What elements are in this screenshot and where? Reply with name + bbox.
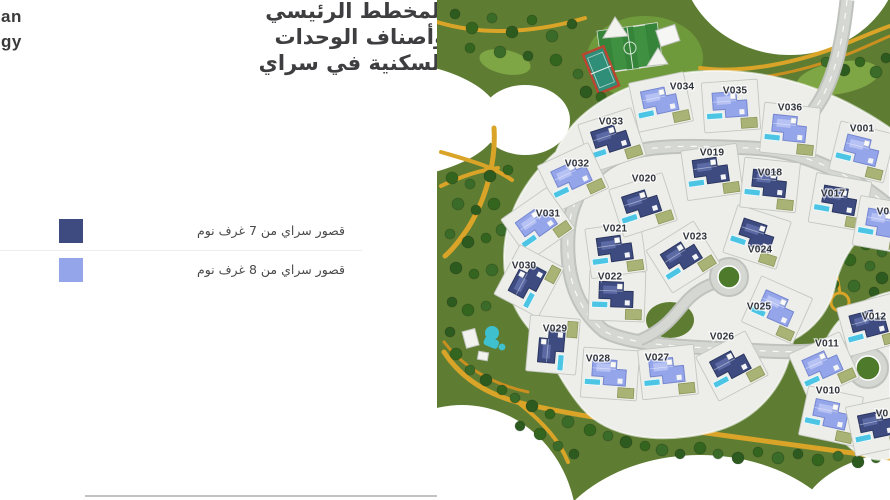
tree [465, 365, 475, 375]
legend-swatch-7br [59, 219, 83, 243]
villa-yard [567, 321, 578, 338]
tree [870, 66, 882, 78]
villa-label-V035: V035 [723, 86, 748, 97]
villa-pool [592, 301, 608, 308]
villa-label-V033: V033 [599, 117, 624, 128]
roof-block [610, 362, 615, 367]
tree [469, 269, 479, 279]
tree [510, 393, 520, 403]
villa-roof-wing [603, 286, 617, 294]
tree [465, 43, 475, 53]
villa-label-V026: V026 [710, 332, 735, 343]
tree [515, 421, 525, 431]
logo-partial: an gy [1, 4, 22, 54]
tree [503, 165, 513, 175]
logo-line-2: gy [1, 29, 22, 54]
villa-label-V010: V010 [816, 386, 841, 397]
tree [462, 236, 474, 248]
roof-block [797, 135, 802, 140]
tree [713, 449, 723, 459]
roof-block [720, 174, 726, 180]
legend-label-8br: قصور سراي من 8 غرف نوم [100, 262, 345, 277]
tree [550, 54, 562, 66]
roof-block [864, 140, 870, 146]
villa-roof-wing [716, 96, 731, 105]
villa-label-V021: V021 [603, 224, 628, 235]
villa-yard [723, 181, 740, 193]
roof-block [846, 207, 852, 213]
villa-label-V012: V012 [862, 312, 887, 323]
roof-block [614, 237, 620, 243]
masterplan-slide: an gy المخطط الرئيسي وأصناف الوحدات السك… [0, 0, 890, 500]
tree [603, 431, 613, 441]
tree [526, 400, 538, 412]
villa-label-V030: V030 [512, 261, 537, 272]
villa-yard [797, 144, 814, 156]
tree [527, 15, 537, 25]
tree [584, 424, 596, 436]
villa-yard [678, 382, 695, 394]
roof-block [777, 190, 782, 195]
tree [523, 51, 533, 61]
tree [445, 229, 455, 239]
tree [481, 301, 491, 311]
tree [494, 46, 506, 58]
tree [848, 280, 860, 292]
tree [484, 170, 496, 182]
roof-block [791, 118, 796, 123]
legend-divider [0, 250, 362, 251]
tree [488, 198, 500, 210]
tree [675, 449, 685, 459]
tree [462, 304, 474, 316]
tree [732, 452, 744, 464]
title-line-1: المخطط الرئيسي [217, 0, 447, 24]
villa-pool [584, 378, 600, 385]
villa-label-V023: V023 [683, 232, 708, 243]
title-line-3: السكنية في سراي [217, 50, 447, 76]
villa-label-V022: V022 [598, 272, 623, 283]
roof-block [832, 404, 838, 410]
villa-label-V027: V027 [645, 353, 670, 364]
tree [445, 327, 455, 337]
villa-yard [617, 388, 634, 399]
villa-yard [741, 117, 758, 128]
villa-label-V019: V019 [700, 148, 725, 159]
tree [833, 451, 843, 461]
tree [569, 449, 579, 459]
villa-label-V018: V018 [758, 168, 783, 179]
roof-block [739, 109, 744, 114]
tree [772, 452, 784, 464]
roof-block [659, 89, 665, 95]
tree [876, 272, 888, 284]
villa-yard [777, 199, 794, 211]
tree [620, 436, 632, 448]
villa-label-partial-25: V0 [876, 409, 889, 420]
villa-label-V032: V032 [565, 159, 590, 170]
villa-label-V001: V001 [850, 124, 875, 135]
villa-V018[interactable] [740, 157, 801, 213]
tree [487, 13, 497, 23]
villa-label-partial-24: V0 [877, 207, 890, 218]
villa-label-V029: V029 [543, 324, 568, 335]
villa-yard [625, 309, 641, 320]
tree [793, 449, 803, 459]
villa-label-V024: V024 [748, 245, 773, 256]
page-title: المخطط الرئيسي وأصناف الوحدات السكنية في… [217, 0, 447, 76]
villa-label-V036: V036 [778, 103, 803, 114]
roof-block [617, 379, 622, 384]
roof-block [837, 422, 843, 428]
villa-pool [744, 188, 761, 196]
villa-label-V025: V025 [747, 302, 772, 313]
tree [450, 348, 462, 360]
legend-label-7br: قصور سراي من 7 غرف نوم [100, 223, 345, 238]
roof-block [710, 159, 716, 165]
tree [812, 454, 824, 466]
villa-label-V017: V017 [821, 189, 846, 200]
tree [562, 416, 574, 428]
roof-block [670, 103, 676, 109]
roof-block [541, 339, 546, 344]
villa-label-V011: V011 [815, 339, 839, 350]
tree [694, 442, 706, 454]
villa-pool [557, 354, 564, 370]
tree [640, 441, 650, 451]
tree [447, 297, 457, 307]
roof-block [624, 252, 630, 258]
title-line-2: وأصناف الوحدات [217, 24, 447, 50]
tree [881, 53, 890, 63]
legend-item-7br: قصور سراي من 7 غرف نوم [0, 219, 360, 245]
tree [465, 179, 475, 189]
roof-block [676, 375, 681, 380]
tree [546, 30, 558, 42]
tree [450, 9, 460, 19]
tree [446, 172, 458, 184]
masterplan-map[interactable]: V034V035V036V001V033V032V031V030V029V028… [437, 0, 890, 500]
tree [865, 261, 875, 271]
villa-label-V028: V028 [586, 354, 611, 365]
tree [656, 444, 668, 456]
tree [545, 409, 555, 419]
tree [486, 264, 498, 276]
villa-roof-wing [776, 119, 791, 128]
tree [471, 205, 481, 215]
legend-swatch-8br [59, 258, 83, 282]
tree [506, 26, 518, 38]
roof-block [617, 284, 622, 289]
legend-item-8br: قصور سراي من 8 غرف نوم [0, 258, 360, 284]
tree [567, 19, 577, 29]
tree [855, 57, 865, 67]
tree [466, 22, 478, 34]
villa-yard [627, 259, 644, 271]
tree [450, 262, 462, 274]
tree [452, 198, 464, 210]
tree [573, 69, 583, 79]
tree [480, 374, 492, 386]
tree [481, 233, 491, 243]
villa-pool [764, 133, 781, 141]
villa-pool [706, 113, 722, 120]
tree [852, 456, 864, 468]
tree [534, 428, 546, 440]
villa-label-V031: V031 [536, 209, 561, 220]
tree [553, 441, 563, 451]
tree [753, 447, 763, 457]
logo-line-1: an [1, 4, 22, 29]
villa-pool [644, 379, 661, 387]
villa-label-V020: V020 [632, 174, 657, 185]
villa-label-V034: V034 [670, 82, 695, 93]
tree [497, 385, 507, 395]
roof-block [625, 300, 630, 305]
villa-roof-wing [542, 344, 551, 359]
tree [580, 86, 592, 98]
